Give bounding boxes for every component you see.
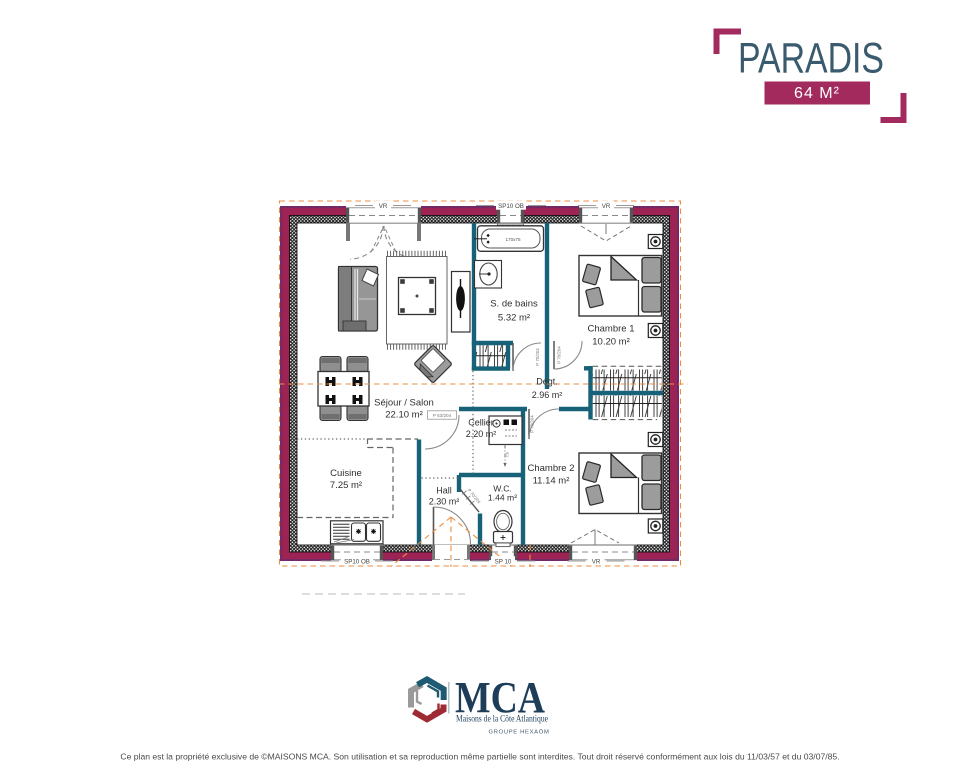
svg-text:2.96 m²: 2.96 m² bbox=[532, 390, 563, 400]
svg-text:P 63/204: P 63/204 bbox=[433, 413, 452, 418]
svg-text:Chambre 1: Chambre 1 bbox=[588, 324, 635, 335]
svg-text:7.25 m²: 7.25 m² bbox=[330, 480, 362, 491]
svg-text:11.14 m²: 11.14 m² bbox=[533, 476, 570, 487]
svg-text:170x75: 170x75 bbox=[505, 237, 521, 242]
svg-text:Cb: Cb bbox=[506, 452, 510, 457]
svg-text:22.10 m²: 22.10 m² bbox=[385, 410, 423, 421]
svg-text:64 M²: 64 M² bbox=[794, 85, 840, 102]
svg-text:VR: VR bbox=[602, 203, 611, 210]
svg-text:GROUPE HEXAŌM: GROUPE HEXAŌM bbox=[489, 729, 550, 736]
svg-text:SP 10: SP 10 bbox=[495, 558, 512, 565]
svg-text:PARADIS: PARADIS bbox=[738, 35, 884, 83]
svg-text:Degt.: Degt. bbox=[536, 377, 558, 387]
svg-text:Cuisine: Cuisine bbox=[330, 468, 362, 479]
svg-text:Hall: Hall bbox=[436, 486, 452, 496]
svg-text:Cellier: Cellier bbox=[468, 418, 494, 428]
svg-text:S. de bains: S. de bains bbox=[490, 299, 538, 310]
svg-text:P 70/204: P 70/204 bbox=[530, 415, 535, 433]
svg-text:2.30 m²: 2.30 m² bbox=[429, 497, 460, 507]
svg-text:Séjour / Salon: Séjour / Salon bbox=[374, 398, 434, 409]
svg-text:1.44 m²: 1.44 m² bbox=[488, 493, 517, 503]
svg-text:2.20 m²: 2.20 m² bbox=[466, 429, 497, 439]
svg-text:5.32 m²: 5.32 m² bbox=[498, 313, 530, 324]
svg-text:VR: VR bbox=[379, 203, 388, 210]
svg-text:SP10 OB: SP10 OB bbox=[344, 558, 370, 565]
svg-text:10.20 m²: 10.20 m² bbox=[592, 337, 630, 348]
svg-text:Ce plan est la propriété exclu: Ce plan est la propriété exclusive de ©M… bbox=[120, 752, 839, 762]
svg-text:Chambre 2: Chambre 2 bbox=[528, 463, 575, 474]
svg-text:P 70/204: P 70/204 bbox=[535, 348, 540, 366]
svg-text:SP10 OB: SP10 OB bbox=[498, 203, 524, 210]
svg-text:P 70/204: P 70/204 bbox=[557, 346, 562, 364]
svg-text:VR: VR bbox=[592, 558, 601, 565]
svg-text:Maisons de la Côte Atlantique: Maisons de la Côte Atlantique bbox=[456, 714, 548, 724]
